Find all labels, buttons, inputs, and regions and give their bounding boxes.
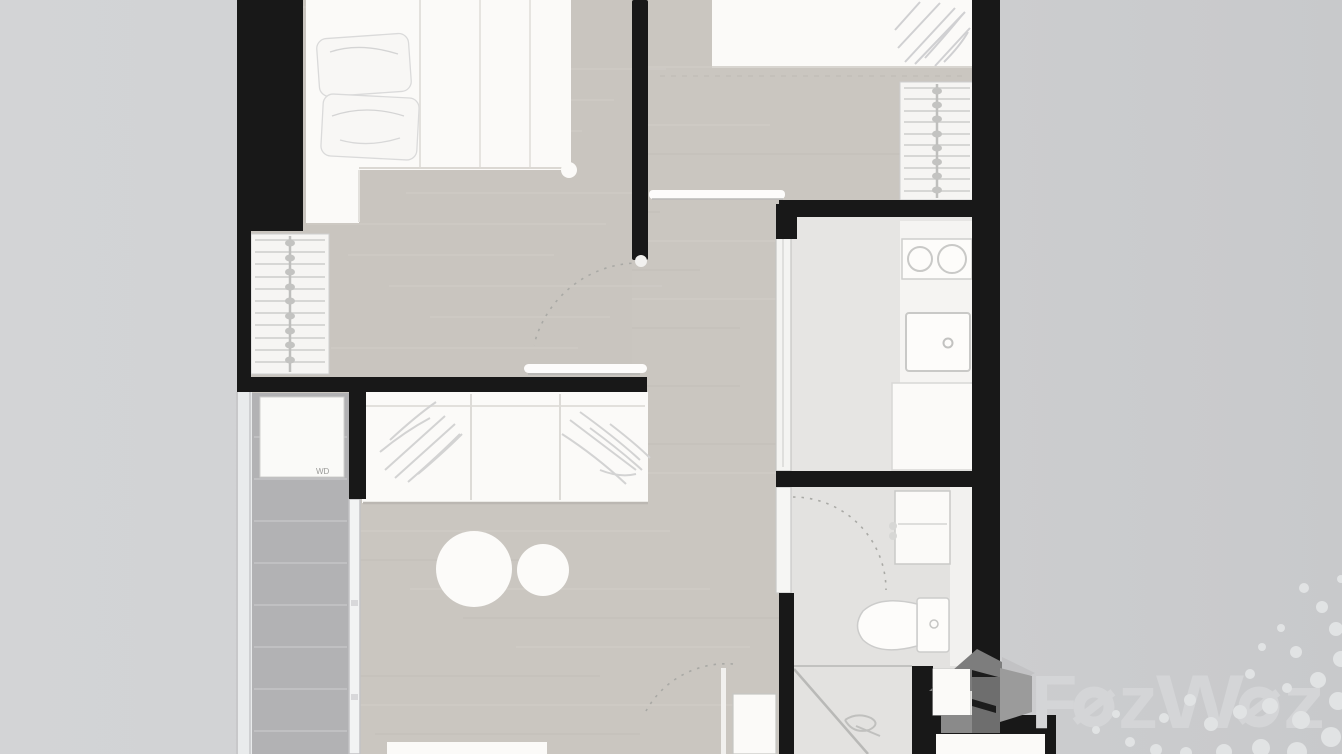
svg-text:F: F [1031,660,1077,745]
svg-text:W: W [1156,660,1244,745]
svg-text:WD: WD [316,467,330,476]
svg-text:z: z [1118,660,1158,745]
